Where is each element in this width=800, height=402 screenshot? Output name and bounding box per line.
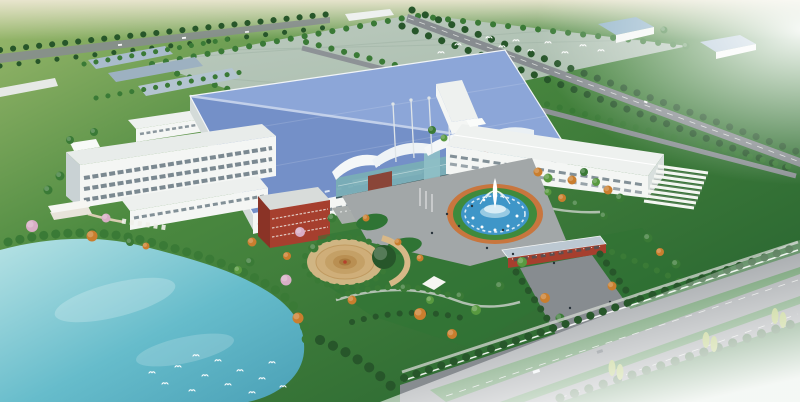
rendering-canvas: Aerial rendering of a landscaped factory… <box>0 0 800 402</box>
campus-aerial-rendering: Aerial rendering of a landscaped factory… <box>0 0 800 402</box>
